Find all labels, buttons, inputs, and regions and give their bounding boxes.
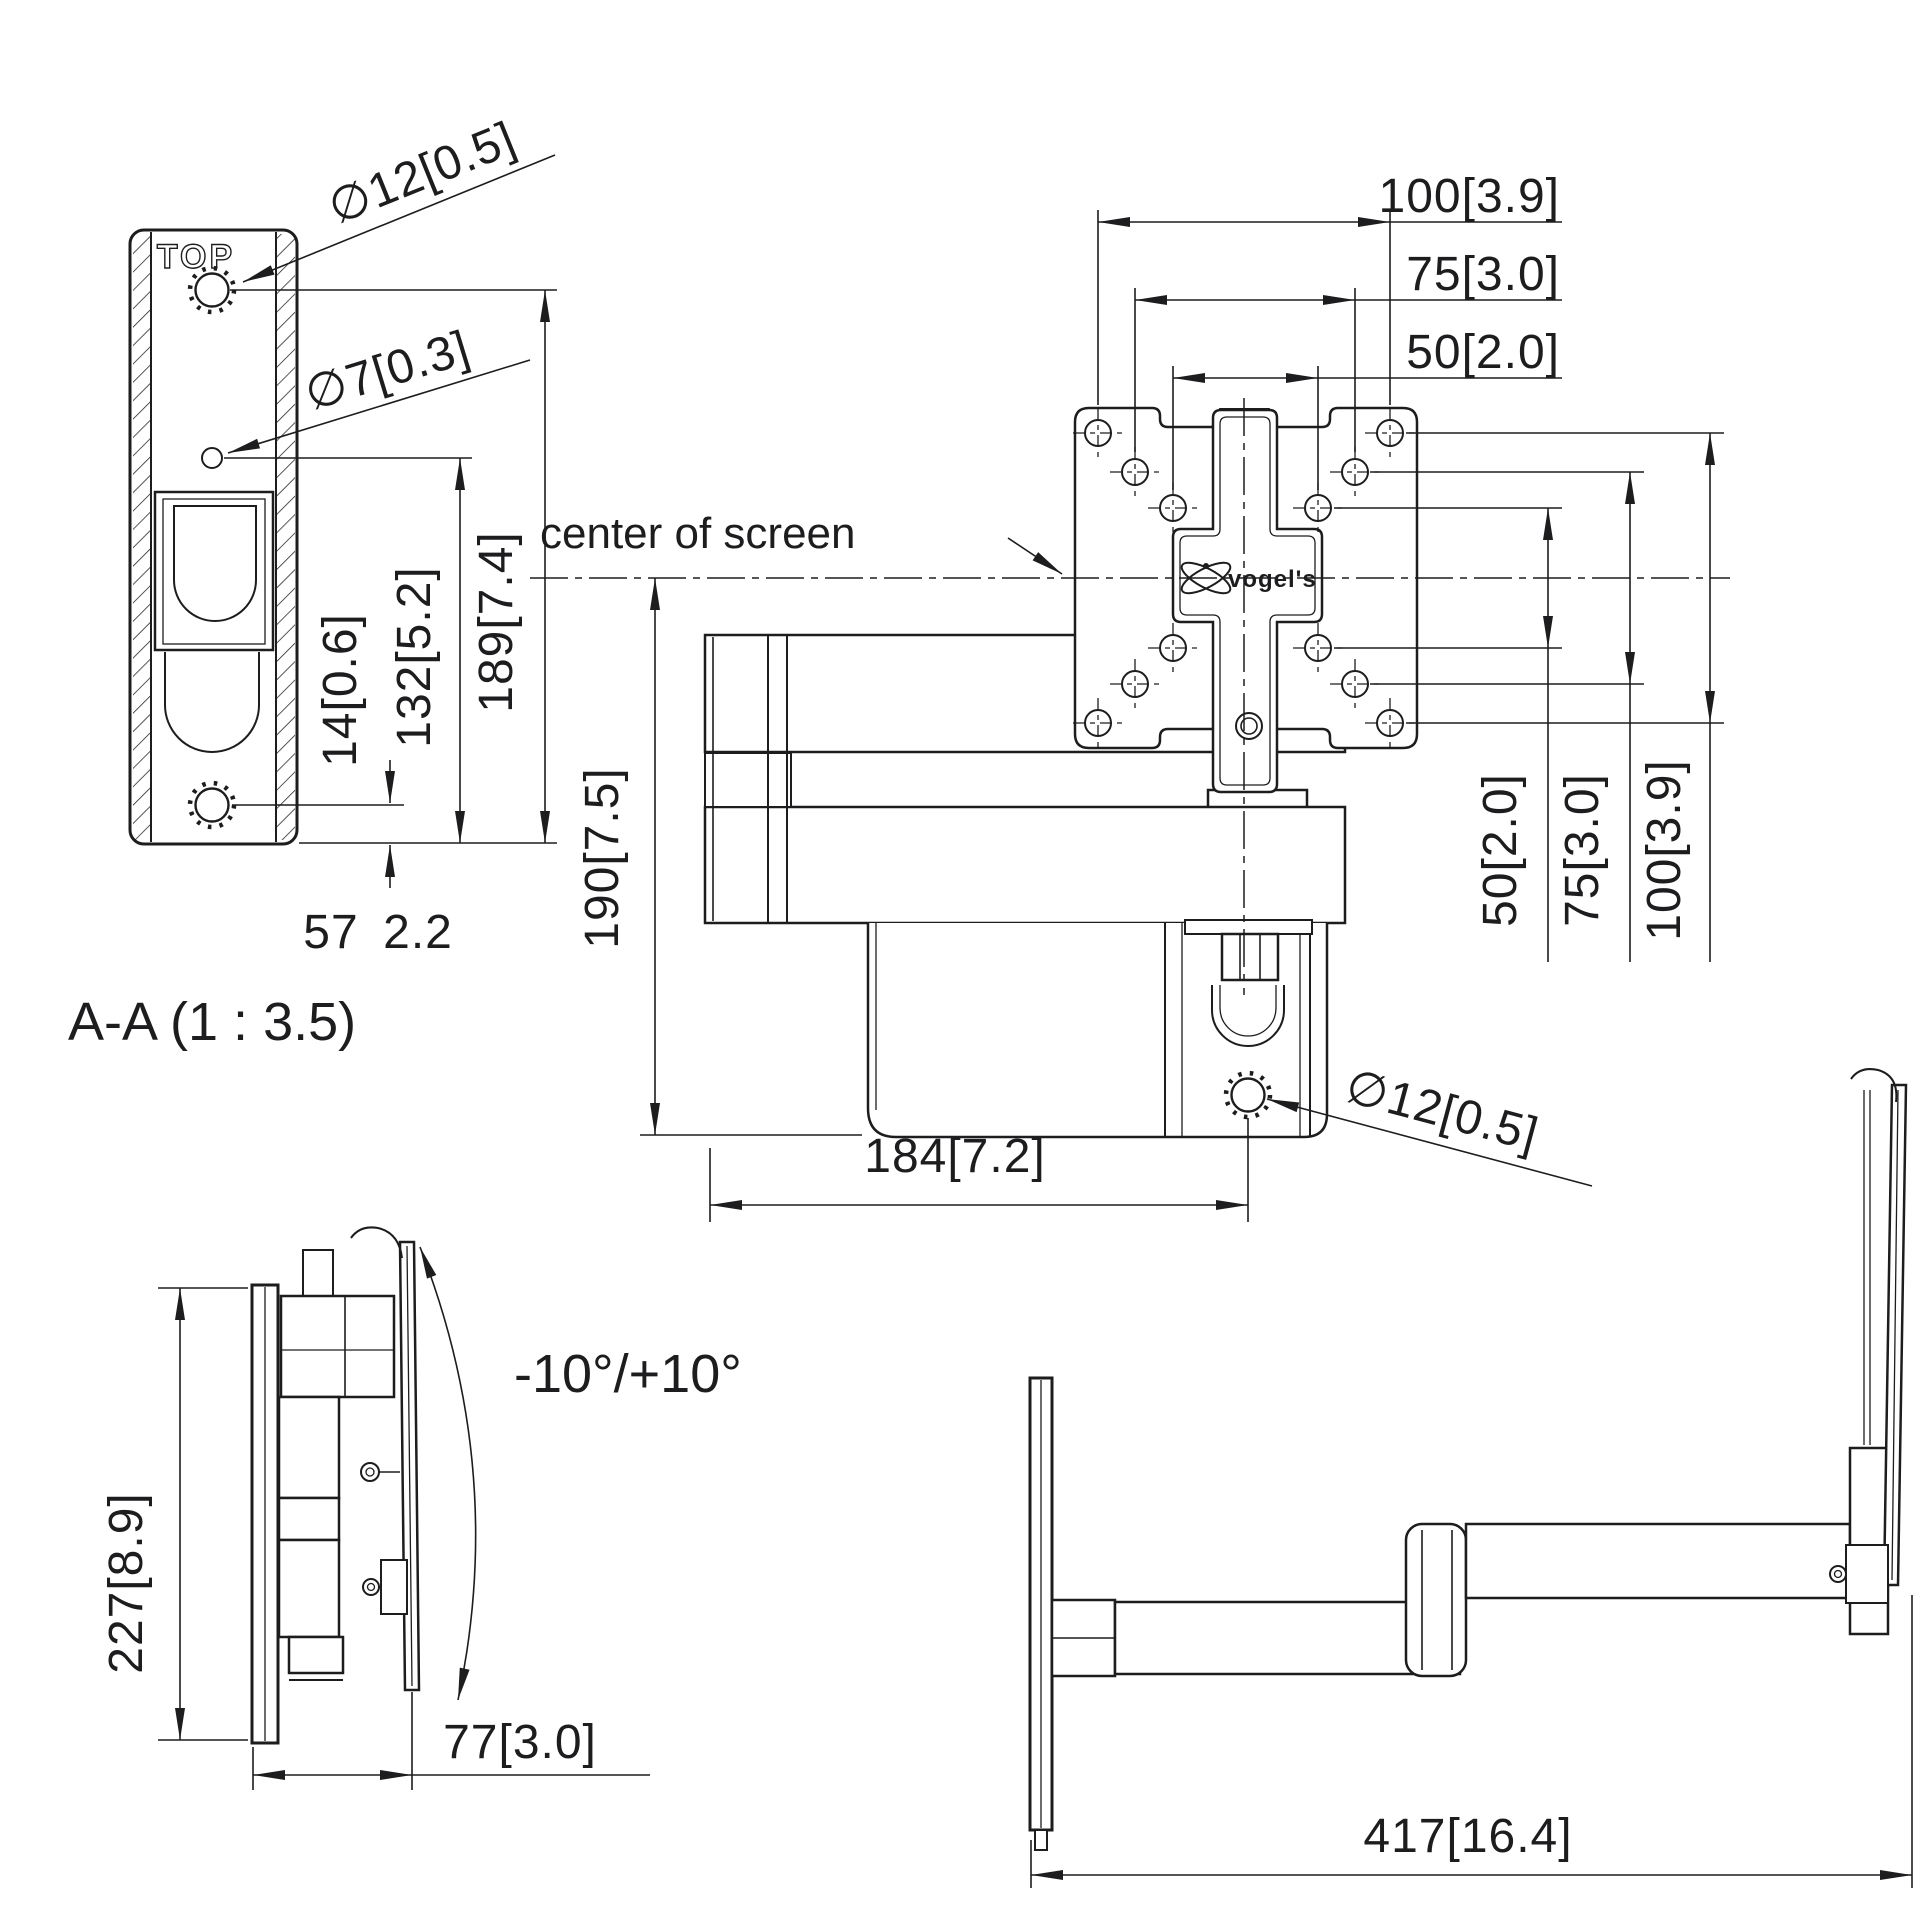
label-189: 189[7.4] bbox=[470, 531, 523, 712]
tilt-range-label: -10°/+10° bbox=[514, 1344, 742, 1404]
label-190: 190[7.5] bbox=[576, 767, 629, 948]
section-view: ∅12[0.5] ∅7[0.3] 189[7.4] 132[5.2] 14[0.… bbox=[68, 112, 557, 1052]
label-75h: 75[3.0] bbox=[1406, 248, 1560, 301]
label-75v: 75[3.0] bbox=[1556, 773, 1609, 927]
technical-drawing-page: ∅12[0.5] ∅7[0.3] 189[7.4] 132[5.2] 14[0.… bbox=[0, 0, 1920, 1920]
tilt-arc bbox=[420, 1247, 476, 1700]
elbow-knuckle bbox=[705, 753, 791, 807]
label-50v: 50[2.0] bbox=[1474, 773, 1527, 927]
body-block-1 bbox=[281, 1296, 394, 1397]
pivot-flange bbox=[1185, 920, 1312, 934]
bottom-clamp-ext bbox=[1846, 1545, 1888, 1603]
label-184: 184[7.2] bbox=[864, 1130, 1045, 1183]
center-of-screen-label: center of screen bbox=[540, 509, 856, 558]
side-view-folded: -10°/+10° 227[8.9] 77[3.0] bbox=[100, 1227, 742, 1790]
label-57: 57 bbox=[303, 906, 358, 959]
bottom-clamp bbox=[381, 1560, 407, 1614]
body-block-3 bbox=[279, 1498, 339, 1540]
tilt-screw-knob bbox=[361, 1463, 379, 1481]
drawing-canvas: ∅12[0.5] ∅7[0.3] 189[7.4] 132[5.2] 14[0.… bbox=[0, 0, 1920, 1920]
label-227: 227[8.9] bbox=[100, 1492, 153, 1673]
label-132: 132[5.2] bbox=[388, 566, 441, 747]
vesa-bracket-side bbox=[1850, 1448, 1888, 1634]
label-dia7-section: ∅7[0.3] bbox=[299, 321, 476, 421]
label-100v: 100[3.9] bbox=[1638, 759, 1691, 940]
wall-plate-foot bbox=[1035, 1830, 1047, 1850]
label-2-2: 2.2 bbox=[383, 906, 453, 959]
top-hook-ext bbox=[1851, 1069, 1896, 1102]
arm-link-2-side bbox=[1466, 1524, 1850, 1598]
section-title: A-A (1 : 3.5) bbox=[68, 992, 356, 1052]
side-view-extended: 417[16.4] bbox=[1030, 1069, 1912, 1888]
clamp-knob-ext bbox=[1830, 1566, 1846, 1582]
logo-dot bbox=[1203, 563, 1209, 569]
hatch-left bbox=[133, 234, 150, 840]
label-100h: 100[3.9] bbox=[1379, 170, 1560, 223]
elbow-side bbox=[1406, 1524, 1466, 1676]
clamp-knob bbox=[363, 1579, 379, 1595]
body-foot bbox=[289, 1637, 343, 1673]
label-14: 14[0.6] bbox=[314, 613, 367, 767]
label-77: 77[3.0] bbox=[443, 1716, 597, 1769]
top-marking: TOP bbox=[157, 238, 235, 276]
label-dia12-section: ∅12[0.5] bbox=[321, 112, 523, 235]
hatch-right bbox=[277, 234, 295, 840]
top-hook bbox=[351, 1227, 402, 1258]
arm-link-lower bbox=[705, 807, 1345, 923]
leader-center-of-screen bbox=[1008, 538, 1062, 574]
body-block-4 bbox=[279, 1540, 339, 1637]
label-417: 417[16.4] bbox=[1363, 1810, 1572, 1863]
label-50h: 50[2.0] bbox=[1406, 326, 1560, 379]
label-dia12-front: ∅12[0.5] bbox=[1340, 1060, 1544, 1162]
top-tab bbox=[303, 1250, 333, 1296]
pivot-nut bbox=[1222, 934, 1278, 980]
brand-text: vogel's bbox=[1228, 566, 1317, 593]
front-view: vogel's 100[3.9] 75[3.0] 50[2.0] 50[2.0]… bbox=[530, 170, 1730, 1222]
body-block-2 bbox=[279, 1397, 339, 1498]
